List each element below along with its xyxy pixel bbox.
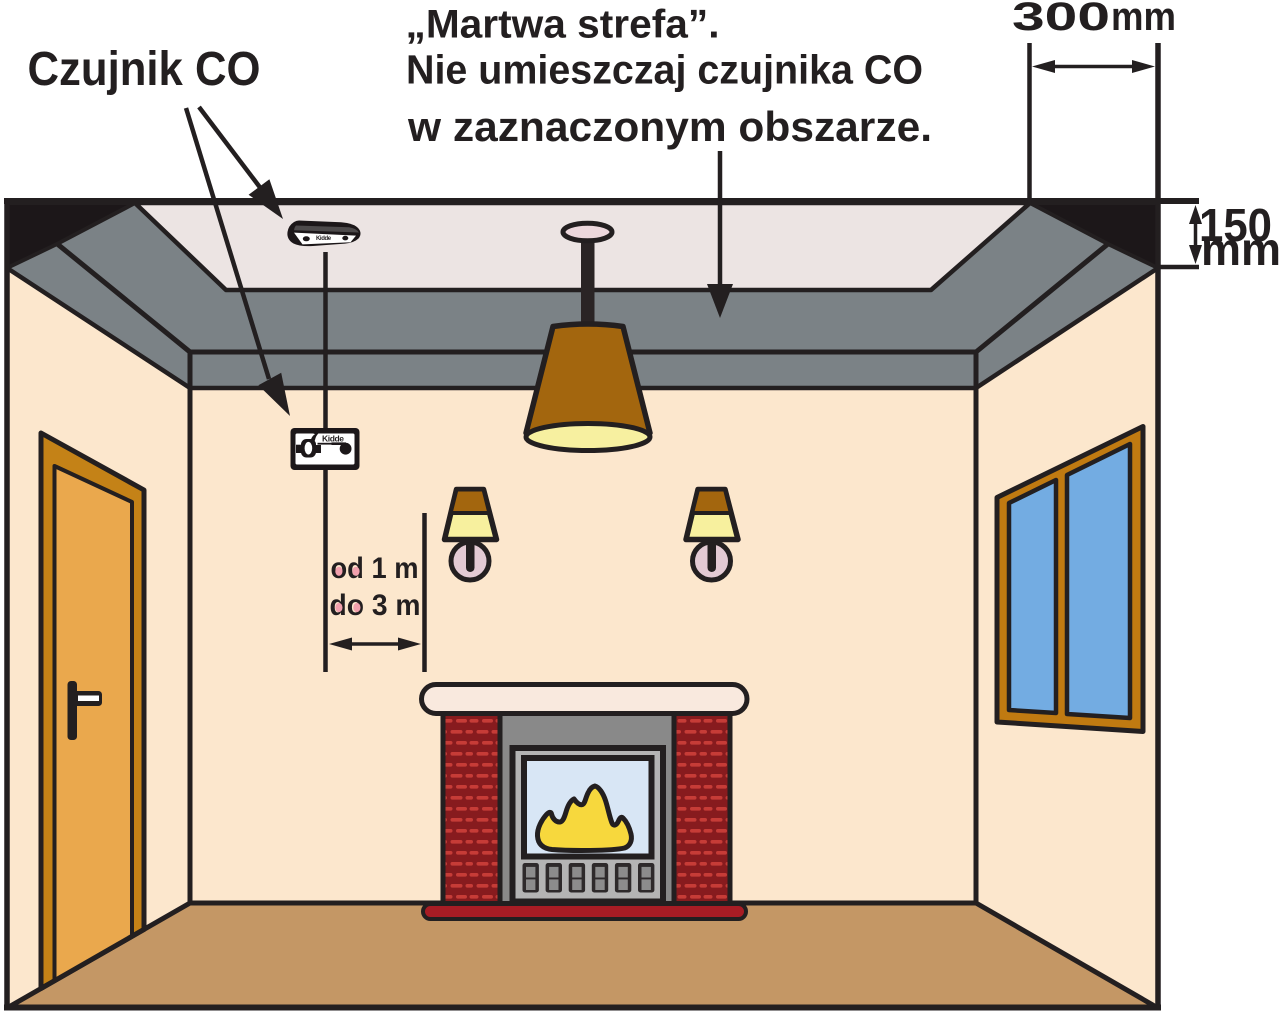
svg-text:Czujnik CO: Czujnik CO	[28, 43, 261, 96]
svg-text:300: 300	[1012, 0, 1110, 39]
svg-text:Kidde: Kidde	[316, 236, 332, 242]
svg-text:mm: mm	[1201, 223, 1280, 275]
svg-text:mm: mm	[1111, 0, 1176, 39]
svg-text:od 1 m: od 1 m	[331, 552, 419, 585]
svg-text:do 3 m: do 3 m	[330, 589, 421, 622]
svg-text:„Martwa strefa”.: „Martwa strefa”.	[406, 3, 720, 47]
svg-text:w zaznaczonym obszarze.: w zaznaczonym obszarze.	[407, 103, 932, 150]
svg-text:Nie umieszczaj czujnika CO: Nie umieszczaj czujnika CO	[406, 47, 923, 93]
svg-text:Kidde: Kidde	[322, 434, 344, 444]
